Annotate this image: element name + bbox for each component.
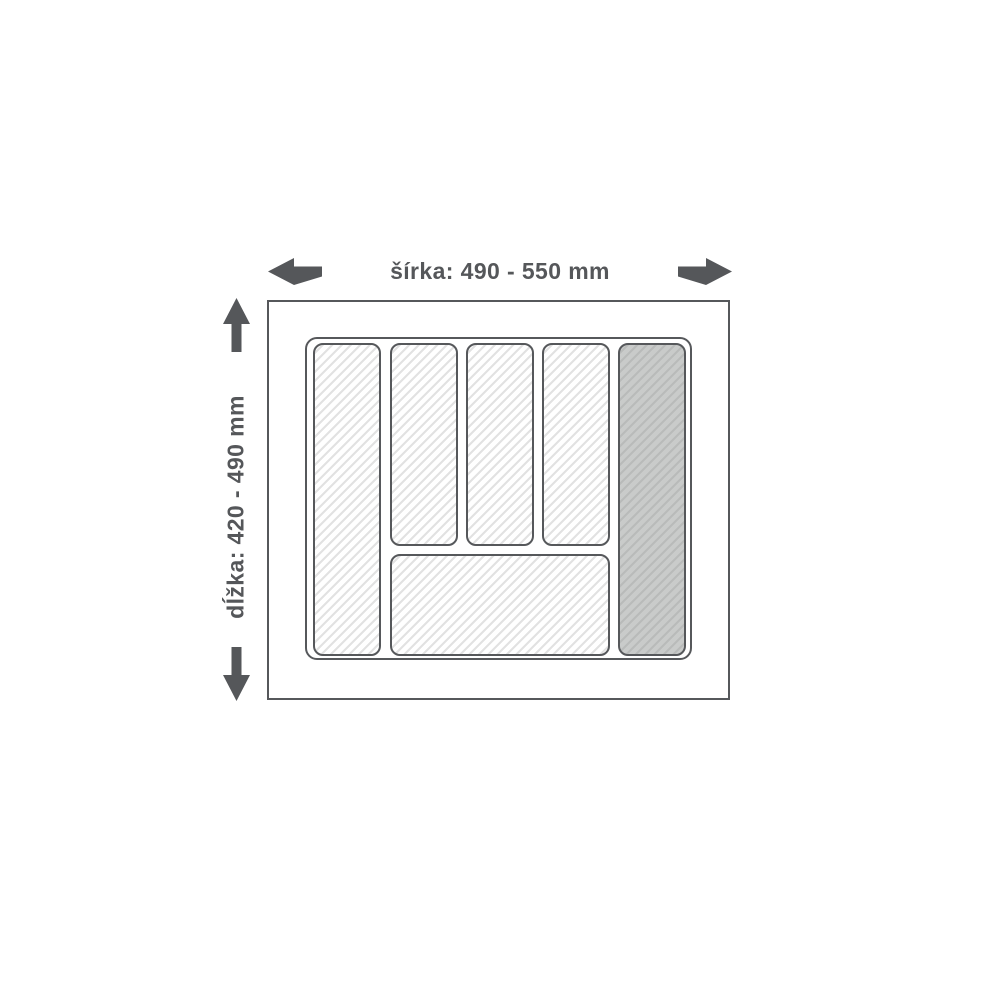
compartment-left-tall	[313, 343, 381, 656]
product-diagram: šírka: 490 - 550 mm dĺžka: 420 - 490 mm	[0, 0, 1000, 1000]
arrow-left-icon	[268, 258, 322, 285]
compartment-top-middle-2	[466, 343, 534, 546]
compartment-top-middle-1	[390, 343, 458, 546]
arrow-up-icon	[223, 298, 250, 352]
compartment-right-tall	[618, 343, 686, 656]
compartment-bottom-wide	[390, 554, 610, 656]
length-dimension-label: dĺžka: 420 - 490 mm	[223, 395, 250, 619]
compartment-top-middle-3	[542, 343, 610, 546]
width-dimension-label: šírka: 490 - 550 mm	[322, 257, 678, 285]
arrow-right-icon	[678, 258, 732, 285]
arrow-down-icon	[223, 647, 250, 701]
